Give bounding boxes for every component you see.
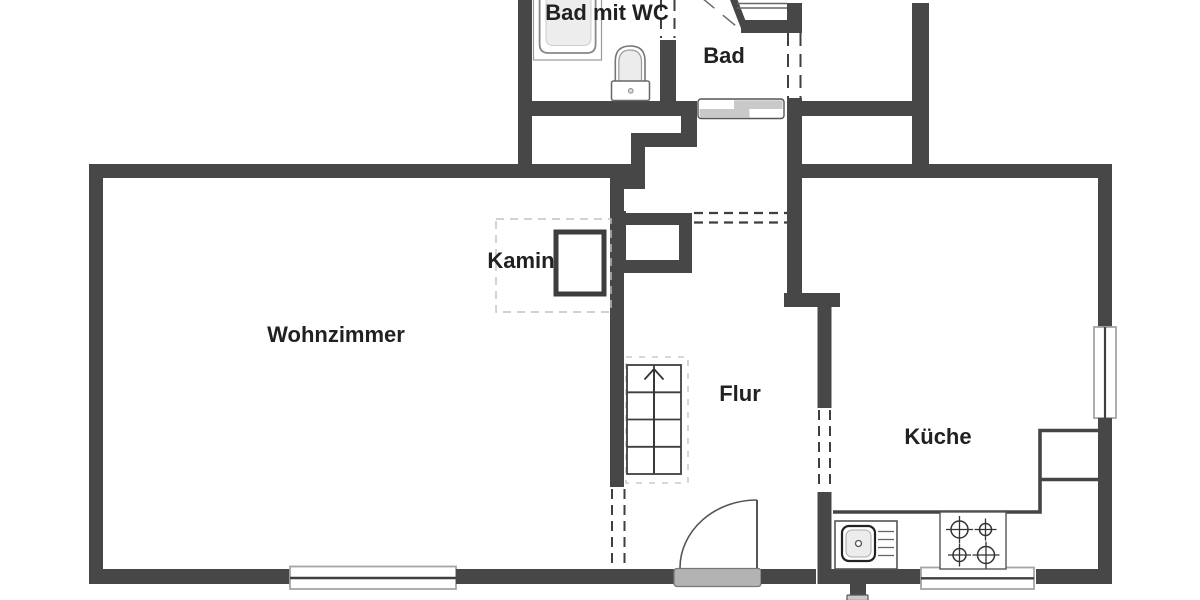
svg-text:Bad: Bad: [703, 43, 745, 68]
svg-text:Küche: Küche: [904, 424, 971, 449]
svg-text:Kamin: Kamin: [487, 248, 554, 273]
svg-text:Wohnzimmer: Wohnzimmer: [267, 322, 405, 347]
svg-text:Bad mit WC: Bad mit WC: [545, 0, 669, 25]
svg-text:Flur: Flur: [719, 381, 761, 406]
